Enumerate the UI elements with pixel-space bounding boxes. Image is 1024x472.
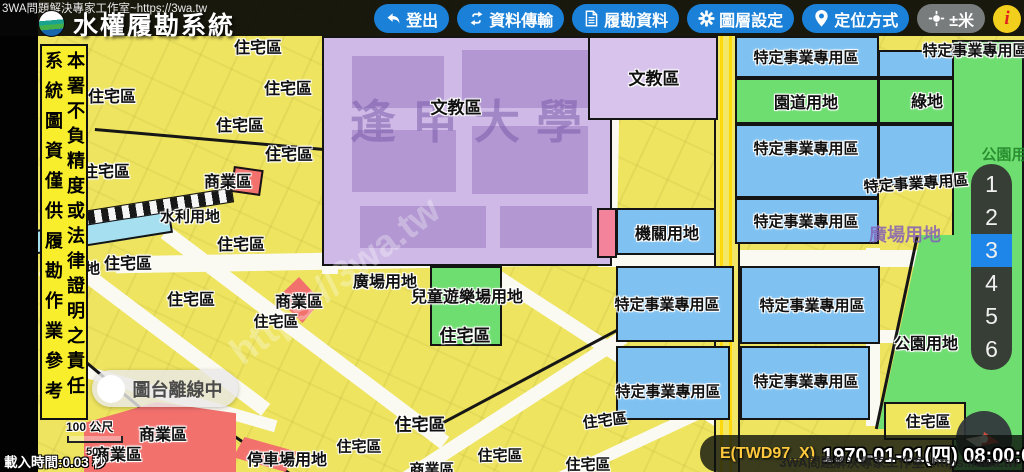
logout-label: 登出 bbox=[406, 7, 438, 31]
scale-bar bbox=[67, 436, 123, 443]
offline-notice-label: 圖台離線中 bbox=[125, 376, 238, 402]
undo-icon bbox=[385, 10, 402, 27]
map-zone-label: 住宅區 bbox=[104, 250, 152, 274]
load-time: 載入時間:0.03 秒 bbox=[4, 451, 106, 471]
map-zone-label: 特定事業專用區 bbox=[753, 138, 858, 159]
zoom-level-3[interactable]: 3 bbox=[971, 234, 1012, 267]
disclaimer-column-1: 系統圖資僅供履勘作業參考 bbox=[42, 51, 64, 418]
zoom-level-4[interactable]: 4 bbox=[971, 267, 1012, 300]
data-transfer-button[interactable]: 資料傳輸 bbox=[457, 4, 564, 33]
map-zone-label: 兒童遊樂場用地 bbox=[411, 283, 523, 307]
document-icon bbox=[583, 10, 600, 27]
map-zone-label: 特定事業專用區 bbox=[753, 211, 858, 232]
zoom-level-2[interactable]: 2 bbox=[971, 201, 1012, 234]
inspection-data-button[interactable]: 履勘資料 bbox=[572, 4, 679, 33]
zoom-level-1[interactable]: 1 bbox=[971, 168, 1012, 201]
disclaimer-panel: 系統圖資僅供履勘作業參考 本署不負精度或法律證明之責任 bbox=[40, 44, 88, 420]
map-zone-label: 商業區 bbox=[204, 168, 252, 192]
map-zone-label: 特定事業專用區 bbox=[759, 295, 864, 316]
scale-label: 100 公尺 bbox=[66, 418, 113, 435]
map-zone-label: 住宅區 bbox=[88, 83, 136, 107]
map-zone-label: 水利用地 bbox=[160, 206, 220, 227]
map-zone-label: 廣場用地 bbox=[869, 221, 941, 247]
map-zone-label: 特定事業專用區 bbox=[614, 294, 719, 315]
map-zone-label: 住宅區 bbox=[82, 158, 130, 182]
map-zone-label: 園道用地 bbox=[774, 89, 838, 113]
gear-icon bbox=[698, 10, 715, 27]
zone-plaza-strip bbox=[597, 208, 617, 258]
map-zone-label: 特定事業專用區 bbox=[615, 381, 720, 402]
map-zone-label: 文教區 bbox=[431, 94, 482, 119]
map-zone-label: 綠地 bbox=[911, 88, 943, 112]
map-zone-label: 住宅區 bbox=[477, 445, 522, 466]
layer-settings-label: 圖層設定 bbox=[719, 7, 783, 31]
campus-building-block bbox=[500, 206, 592, 248]
map-zone-label: 文教區 bbox=[629, 65, 680, 90]
pin-icon bbox=[813, 10, 830, 27]
inspection-data-label: 履勘資料 bbox=[604, 7, 668, 31]
map-zone-label: 特定事業專用區 bbox=[753, 371, 858, 392]
zoom-level-6[interactable]: 6 bbox=[971, 333, 1012, 366]
map-zone-label: 公園用地 bbox=[894, 330, 958, 354]
zoom-control: 123456 bbox=[971, 164, 1012, 370]
accuracy-button[interactable]: ±米 bbox=[917, 4, 985, 33]
disclaimer-column-2: 本署不負精度或法律證明之責任 bbox=[64, 51, 86, 418]
offline-notice: 圖台離線中 bbox=[92, 370, 238, 407]
left-black-panel bbox=[0, 0, 38, 472]
map-zone-label: 住宅區 bbox=[905, 411, 950, 432]
map-zone-label: 住宅區 bbox=[216, 112, 264, 136]
map-zone-label: 住宅區 bbox=[234, 34, 282, 58]
map-zone-label: 住宅區 bbox=[565, 454, 610, 472]
info-button[interactable]: i bbox=[993, 5, 1021, 33]
map-zone-label: 住宅區 bbox=[336, 436, 381, 457]
map-zone-label: 住宅區 bbox=[395, 411, 446, 436]
transfer-icon bbox=[468, 10, 485, 27]
app-logo-icon bbox=[38, 10, 65, 37]
map-zone-label: 停車場用地 bbox=[247, 446, 327, 470]
map-zone-label: 商業區 bbox=[275, 288, 323, 312]
positioning-method-button[interactable]: 定位方式 bbox=[802, 4, 909, 33]
spinner-icon bbox=[97, 375, 125, 403]
bottom-watermark: 3WA問題解決專家工作室~https://3wa.tw bbox=[779, 452, 1018, 471]
gps-icon bbox=[928, 10, 945, 27]
page-title: 水權履勘系統 bbox=[73, 6, 235, 42]
map-zone-label: 住宅區 bbox=[264, 75, 312, 99]
map-zone-label: 住宅區 bbox=[167, 286, 215, 310]
map-zone-label: 機關用地 bbox=[635, 220, 699, 244]
map-zone-label: 特定事業專用區 bbox=[753, 47, 858, 68]
map-zone-label: 住宅區 bbox=[253, 311, 298, 332]
layer-settings-button[interactable]: 圖層設定 bbox=[687, 4, 794, 33]
zone-special-business bbox=[735, 124, 879, 198]
map-zone-label: 商業區 bbox=[409, 459, 454, 472]
positioning-method-label: 定位方式 bbox=[834, 7, 898, 31]
map-zone-label: 住宅區 bbox=[217, 231, 265, 255]
logout-button[interactable]: 登出 bbox=[374, 4, 449, 33]
app-window: 逢甲大學 https://3wa.tw 住宅區住宅區住宅區住宅區商業區住宅區住宅… bbox=[0, 0, 1024, 472]
map-zone-label: 特定事業專用區 bbox=[922, 40, 1024, 61]
data-transfer-label: 資料傳輸 bbox=[489, 7, 553, 31]
top-nav: 登出 資料傳輸 履勘資料 圖層設定 定位方式 ±米 i bbox=[374, 4, 1021, 33]
zoom-level-5[interactable]: 5 bbox=[971, 300, 1012, 333]
accuracy-label: ±米 bbox=[949, 7, 974, 31]
map-zone-label: 住宅區 bbox=[582, 407, 629, 433]
map-zone-label: 商業區 bbox=[139, 421, 187, 445]
map-zone-label: 住宅區 bbox=[265, 141, 313, 165]
map-zone-label: 住宅區 bbox=[440, 322, 491, 347]
map-zone-label: 公園用 bbox=[981, 144, 1024, 165]
map-zone-label: 廣場用地 bbox=[353, 268, 417, 292]
